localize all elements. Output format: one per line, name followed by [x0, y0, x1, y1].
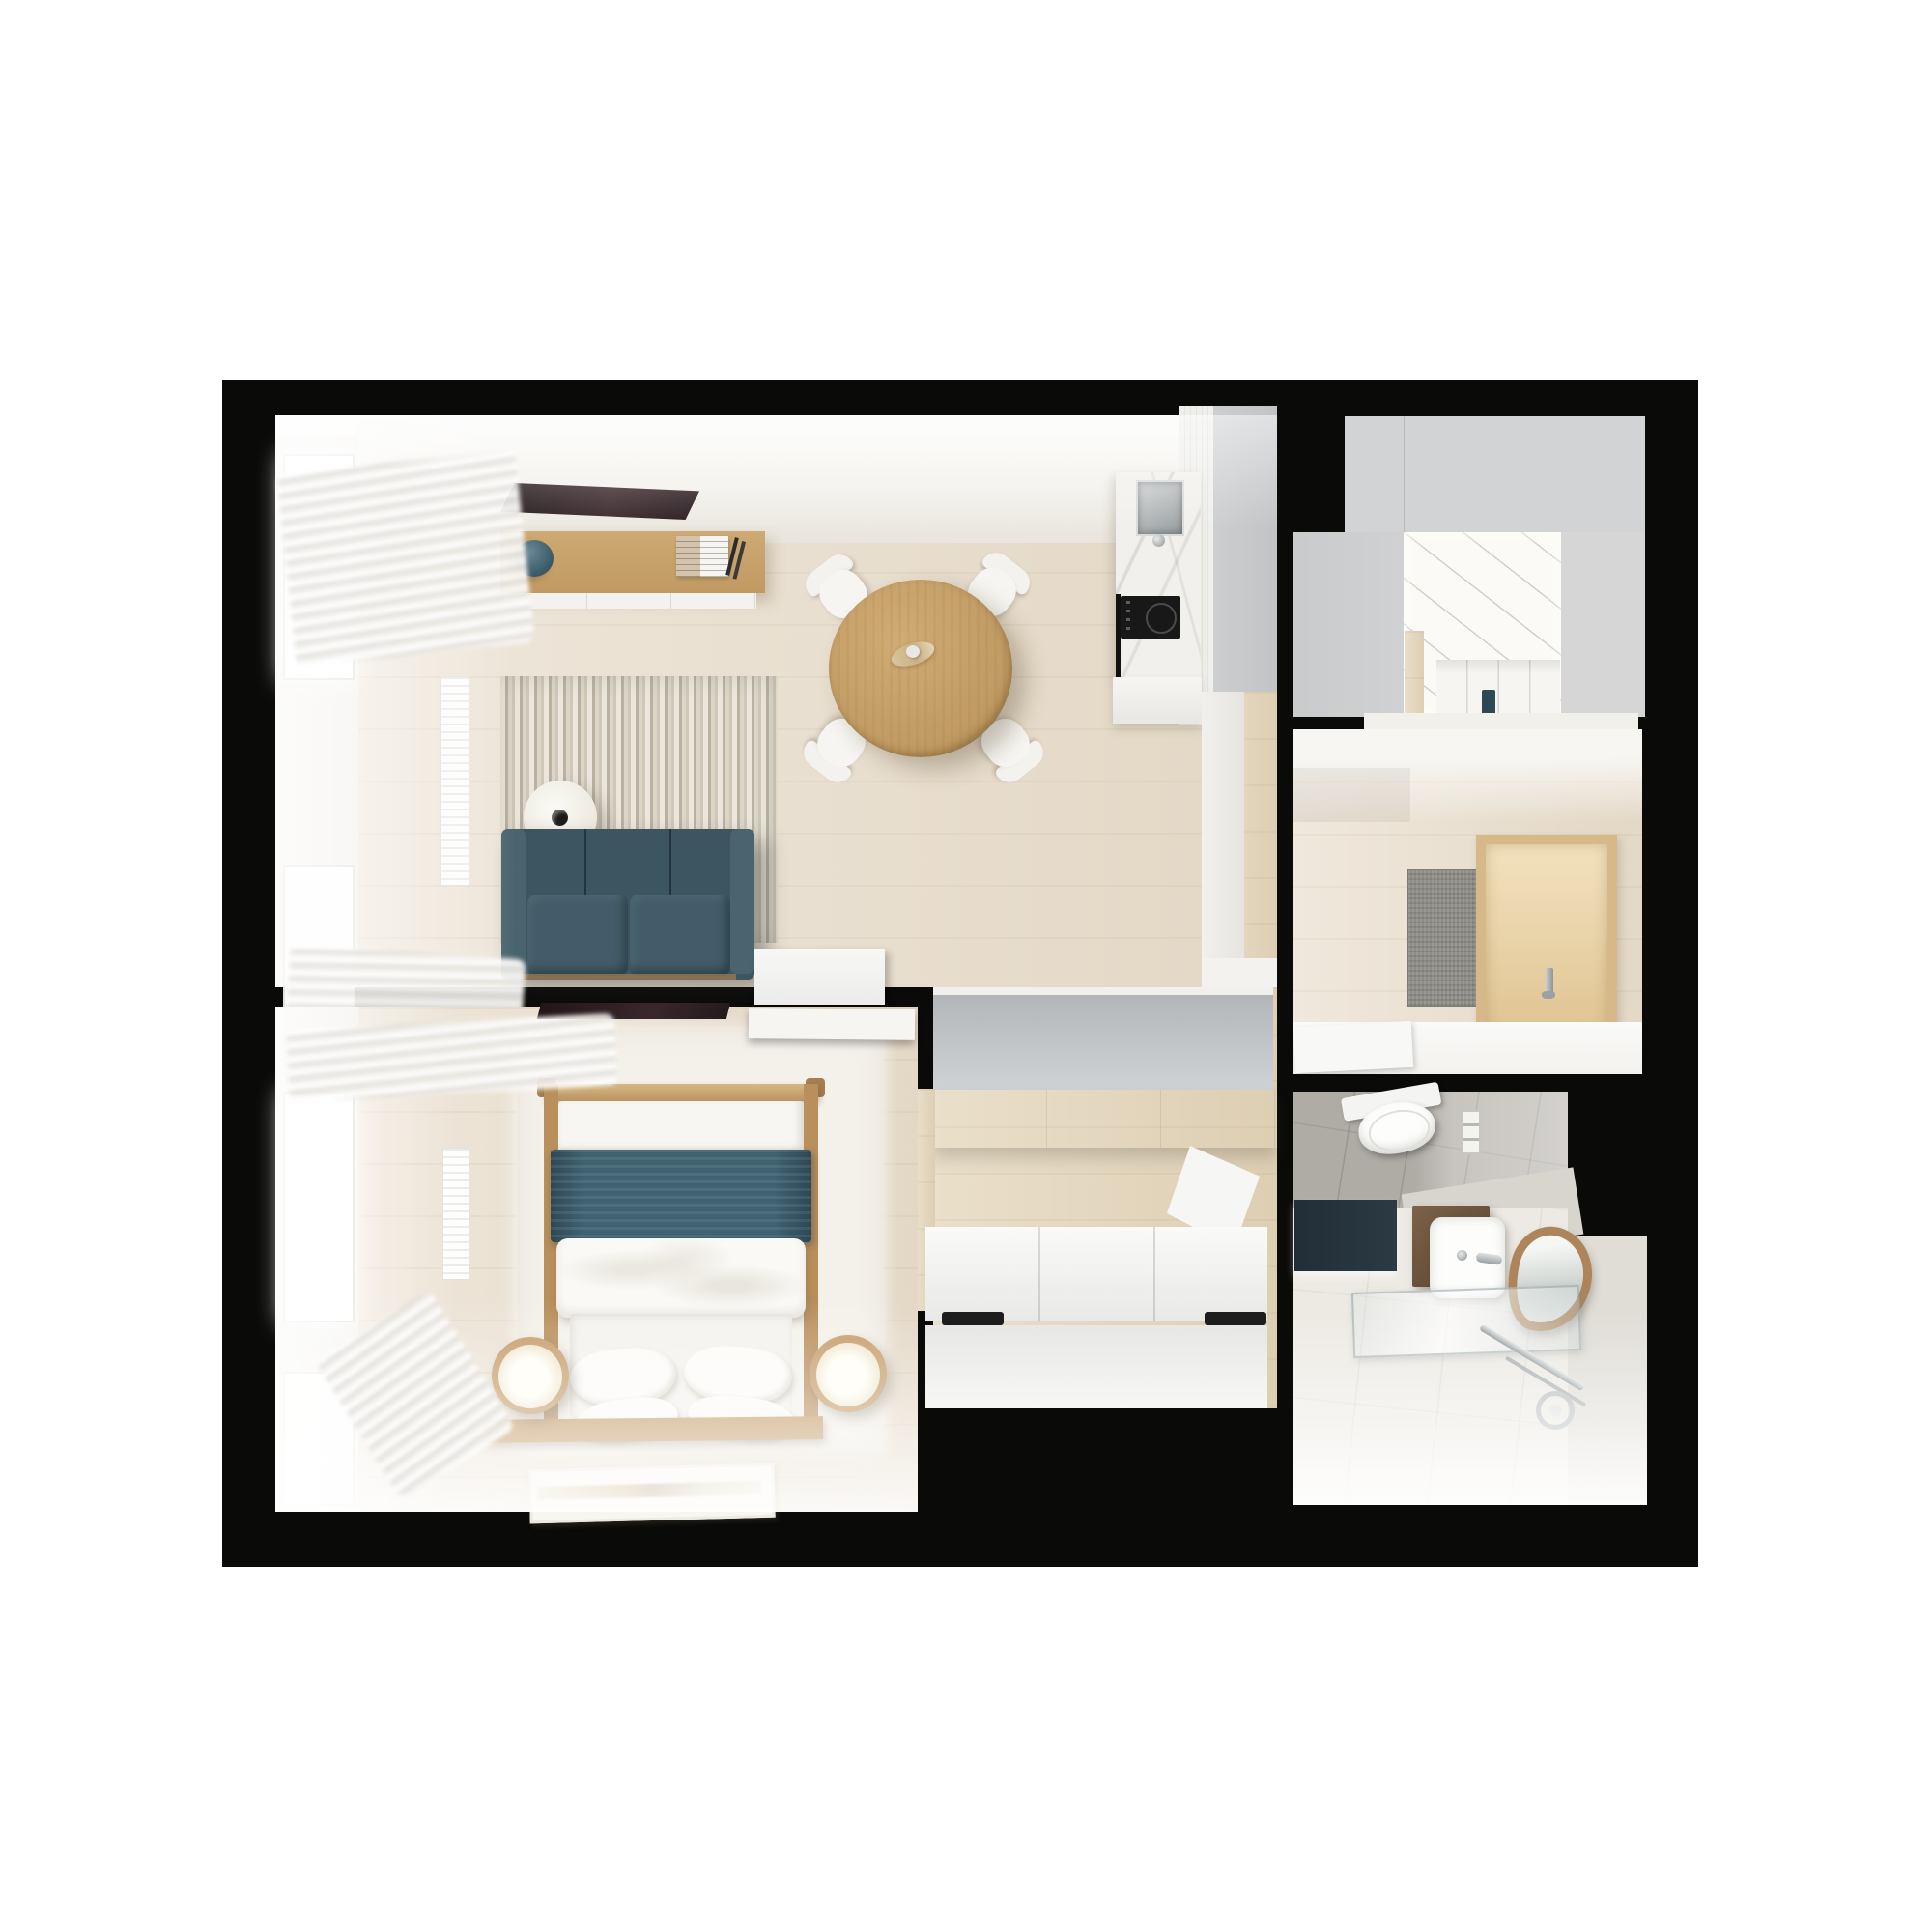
bathroom-dark-panel [1294, 1200, 1397, 1271]
coffee-cup [552, 810, 568, 826]
sofa-arm-left [501, 829, 526, 974]
entry-wall-hook-dot [1542, 991, 1555, 999]
sofa-seat-right [630, 895, 730, 976]
white-sideboard [754, 949, 885, 1005]
open-magazine [676, 536, 728, 577]
living-radiator [440, 676, 469, 886]
bed-teal-blanket [551, 1150, 811, 1242]
bedroom-door-leaf [749, 1008, 915, 1040]
cooktop-burner [1146, 603, 1177, 634]
wardrobe-handle-right [1205, 1312, 1266, 1325]
sofa-seat-left [527, 895, 628, 976]
sofa-arm-right [730, 829, 754, 974]
shower-head [1536, 1391, 1575, 1430]
kitchen-sink [1136, 480, 1184, 536]
closet-top [1345, 416, 1645, 532]
kitchen-side-wall [1213, 406, 1277, 692]
entry-coat-niche [1476, 835, 1617, 1043]
sliding-wardrobe-top [925, 1227, 1267, 1321]
kitchen-passage-endblock [1202, 958, 1277, 987]
media-console-front [503, 593, 756, 609]
cooktop-controls [1126, 601, 1130, 634]
bedside-lamp-right [810, 1335, 887, 1412]
white-lower-cabinet [933, 1090, 1277, 1148]
bed-mattress [558, 1101, 804, 1153]
bed-foot-rail [483, 1416, 823, 1443]
bedroom-window-upper [283, 1092, 355, 1322]
sink-drain [1457, 1250, 1467, 1261]
kitchen-passage-wall [1202, 692, 1244, 960]
entry-corner-shadow [1293, 768, 1410, 822]
round-dining-table [829, 580, 1012, 757]
closet-dark-box [1482, 690, 1495, 715]
bedroom-radiator [442, 1148, 469, 1280]
floor-plan [0, 0, 1932, 1932]
sliding-wardrobe-front [925, 1325, 1267, 1408]
closet-panel-seam [1404, 416, 1405, 532]
bedside-lamp-left [492, 1337, 569, 1414]
sofa-wood-base [522, 974, 736, 980]
bathroom-light-switch [1462, 1110, 1481, 1154]
sink-faucet [1152, 534, 1165, 547]
bed-duvet [556, 1238, 806, 1318]
wardrobe-handle-left [942, 1312, 1004, 1325]
centerpiece-vase [906, 645, 920, 658]
glass-shower-screen [1351, 1285, 1581, 1358]
kitchen-counter-end [1113, 677, 1202, 724]
living-curtain-upper [276, 450, 535, 668]
tall-gray-cabinet [933, 995, 1273, 1090]
corridor-cabinet-seam [933, 987, 1273, 995]
closet-shelf-cubbies [1436, 660, 1560, 715]
closet-floor-sliver [1405, 631, 1424, 715]
entrance-door-leaf [1293, 1021, 1413, 1073]
